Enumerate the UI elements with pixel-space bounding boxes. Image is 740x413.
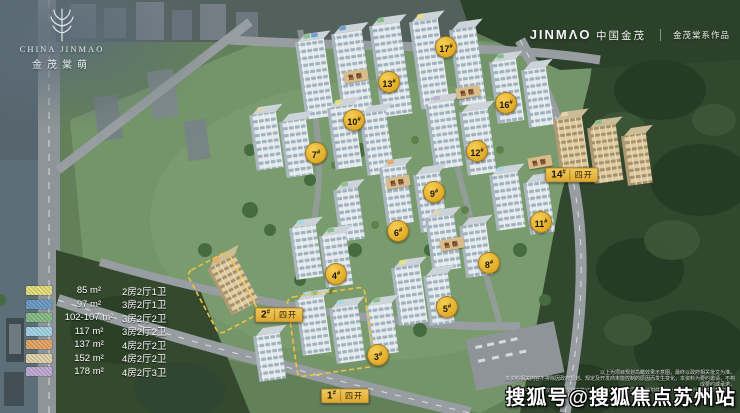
- legend-row: 137 m²4房2厅2卫: [26, 340, 166, 349]
- building-number-badge: 10#: [343, 109, 365, 131]
- legend-row: 152 m²4房2厅2卫: [26, 354, 166, 363]
- jinmao-wordmark-cn: 中国金茂: [596, 30, 646, 42]
- building-number-badge: 8#: [478, 252, 500, 274]
- legend-swatch: [26, 354, 52, 363]
- building-number-badge: 16#: [495, 92, 517, 114]
- legend-area: 137 m²: [60, 339, 118, 350]
- jinmao-tree-icon: [47, 8, 77, 42]
- legend-swatch: [26, 300, 52, 309]
- brand-name-en: CHINA JINMAO: [20, 44, 105, 54]
- building-number-badge: 6#: [387, 220, 409, 242]
- legend-area: 102-107 m²: [60, 312, 118, 323]
- building-number-badge: 13#: [378, 71, 400, 93]
- building-number-badge: 17#: [435, 36, 457, 58]
- legend-layout: 4房2厅2卫: [122, 338, 166, 352]
- jinmao-wordmark: JINMΛO 中国金茂: [530, 26, 646, 44]
- legend-area: 117 m²: [60, 326, 118, 337]
- sohu-watermark: 搜狐号@搜狐焦点苏州站: [505, 381, 736, 410]
- building-batch-label: 14#四开: [545, 167, 598, 182]
- legend-layout: 3房2厅2卫: [122, 324, 166, 338]
- legend-layout: 3房2厅2卫: [122, 311, 166, 325]
- product-series-mark: 金茂棠系作品: [660, 29, 730, 41]
- legend-swatch: [26, 340, 52, 349]
- building-batch-label: 2#四开: [255, 307, 303, 322]
- legend-swatch: [26, 367, 52, 376]
- jinmao-header-logo: JINMΛO 中国金茂 金茂棠系作品: [530, 26, 730, 44]
- building-number-badge: 5#: [436, 296, 458, 318]
- jinmao-wordmark-en: JINMΛO: [530, 27, 592, 42]
- legend-area: 97 m²: [60, 299, 118, 310]
- project-name-cn: 金茂棠萌: [32, 56, 92, 71]
- legend-layout: 4房2厅3卫: [122, 365, 166, 379]
- legend-layout: 3房2厅1卫: [122, 297, 166, 311]
- building-number-badge: 3#: [367, 344, 389, 366]
- building-number-badge: 12#: [466, 140, 488, 162]
- building-batch-label: 1#四开: [321, 388, 369, 403]
- legend-area: 178 m²: [60, 366, 118, 377]
- legend-row: 178 m²4房2厅3卫: [26, 367, 166, 376]
- legend-area: 85 m²: [60, 285, 118, 296]
- legend-swatch: [26, 286, 52, 295]
- legend-layout: 4房2厅2卫: [122, 351, 166, 365]
- aerial-site-plan: CHINA JINMAO 金茂棠萌 JINMΛO 中国金茂 金茂棠系作品 85 …: [0, 0, 740, 413]
- china-jinmao-logo: CHINA JINMAO 金茂棠萌: [14, 8, 110, 71]
- legend-row: 102-107 m²3房2厅2卫: [26, 313, 166, 322]
- building-number-badge: 7#: [305, 142, 327, 164]
- area-legend: 85 m²2房2厅1卫97 m²3房2厅1卫102-107 m²3房2厅2卫11…: [26, 286, 166, 376]
- building-number-badge: 11#: [530, 211, 552, 233]
- legend-layout: 2房2厅1卫: [122, 284, 166, 298]
- building-number-badge: 9#: [423, 181, 445, 203]
- legend-area: 152 m²: [60, 353, 118, 364]
- legend-row: 117 m²3房2厅2卫: [26, 327, 166, 336]
- legend-swatch: [26, 327, 52, 336]
- legend-swatch: [26, 313, 52, 322]
- legend-row: 97 m²3房2厅1卫: [26, 300, 166, 309]
- legend-row: 85 m²2房2厅1卫: [26, 286, 166, 295]
- building-number-badge: 4#: [325, 263, 347, 285]
